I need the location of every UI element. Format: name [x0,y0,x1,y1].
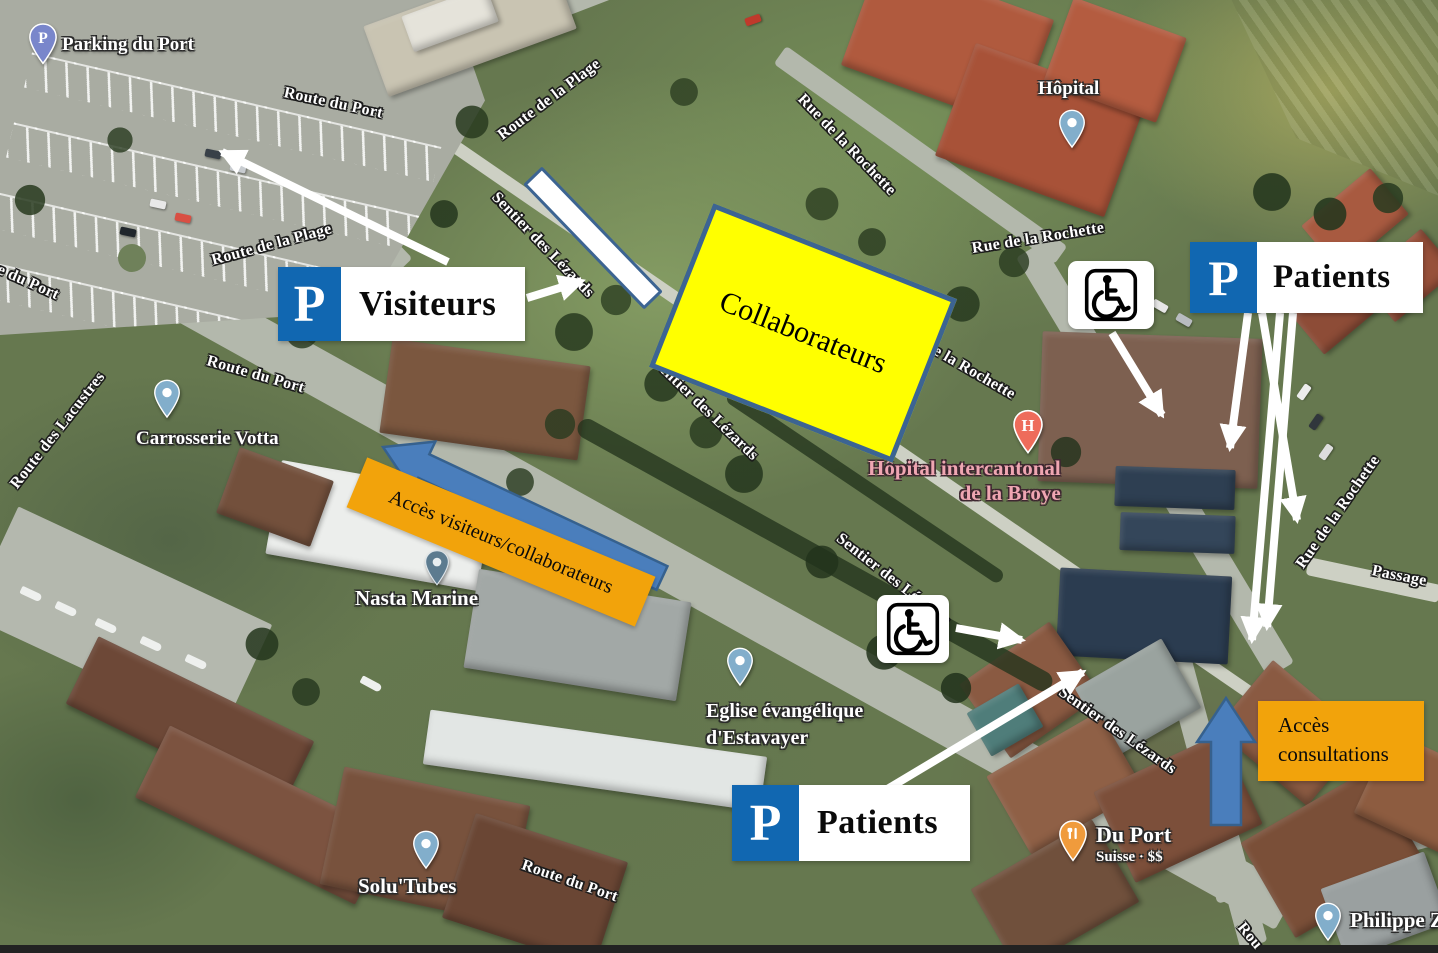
parking-p-icon: P [278,267,341,341]
satellite-map: <#-- dummy comment removed --> [0,0,1438,945]
visitors-parking-box: P Visiteurs [278,267,525,341]
place-label-solutubes: Solu'Tubes [358,874,456,899]
place-label-eglise: Eglise évangélique d'Estavayer [706,698,863,752]
svg-text:H: H [1022,416,1035,435]
restaurant-pin-icon [1058,818,1088,864]
hospital-h-pin-icon: H [1012,408,1044,456]
parking-pin-icon: P [28,22,58,66]
patients-top-label: Patients [1257,242,1391,313]
visitors-label: Visiteurs [341,267,496,341]
collaborators-zone-label: Collaborateurs [715,285,892,381]
place-label-parking-du-port: Parking du Port [62,34,194,56]
access-consultations-line1: Accès [1278,711,1424,740]
hopital-pin-icon [1058,108,1086,150]
access-consultations-line2: consultations [1278,740,1424,769]
access-consultations-box: Accès consultations [1258,701,1424,781]
philippe-pin-icon [1314,900,1342,944]
solutubes-pin-icon [412,828,440,872]
parking-p-icon: P [732,785,799,861]
wheelchair-sign-middle [877,595,949,663]
place-label-philippe: Philippe Z [1350,908,1438,933]
parking-p-icon: P [1190,242,1257,313]
place-label-nasta-marine: Nasta Marine [355,586,478,611]
wheelchair-icon [1083,268,1139,322]
place-label-hopital: Hôpital [1038,78,1099,100]
place-label-hospital-area: Hôpital intercantonal de la Broye [868,456,1061,506]
place-label-du-port: Du Port Suisse · $$ [1096,822,1171,866]
patients-bottom-parking-box: P Patients [732,785,970,861]
solar-panels-2 [1119,512,1235,554]
patients-bottom-label: Patients [799,785,938,861]
carrosserie-pin-icon [153,378,181,420]
wheelchair-icon [886,602,940,656]
roundabout-center [118,244,146,272]
patients-top-parking-box: P Patients [1190,242,1423,313]
svg-text:P: P [38,30,48,47]
nasta-pin-icon [424,548,450,588]
solar-panels-1 [1114,466,1235,510]
eglise-pin-icon [726,646,754,688]
building-hospital-main [1037,331,1262,489]
place-label-carrosserie: Carrosserie Votta [136,428,279,450]
wheelchair-sign-top [1068,261,1154,329]
